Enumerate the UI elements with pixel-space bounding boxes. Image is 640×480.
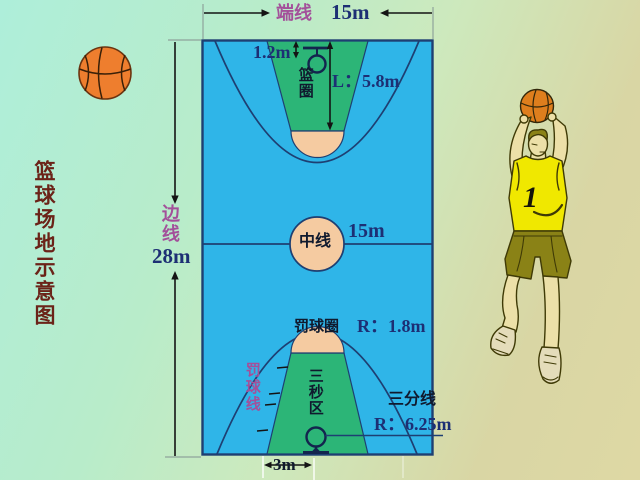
three-point-line-value: R：6.25m: [374, 415, 452, 434]
jersey-number: 1: [523, 181, 538, 214]
basketball-icon: [79, 47, 131, 99]
diagram-title: 篮球场地示意图: [33, 160, 55, 328]
three-point-line-label: 三分线: [388, 392, 436, 409]
backboard-offset-value: 1.2m: [253, 43, 291, 62]
end-line-label: 端线: [276, 4, 312, 23]
key-length-value: L：5.8m: [332, 72, 400, 91]
lane-base-value: 3m: [273, 456, 296, 474]
three-second-area-label: 三秒区: [306, 368, 322, 416]
free-throw-circle-label: 罚球圈: [294, 320, 339, 336]
end-line-value: 15m: [331, 1, 370, 23]
free-throw-circle-value: R：1.8m: [357, 317, 426, 336]
free-throw-line-label: 罚球线: [243, 362, 259, 413]
side-line-value: 28m: [152, 245, 191, 267]
side-line-label: 边线: [160, 204, 179, 244]
center-line-value: 15m: [348, 221, 385, 242]
rim-label: 篮圈: [296, 67, 312, 99]
center-line-label: 中线: [299, 234, 331, 251]
basketball-court-diagram: 1 篮球场地示意图 端线 15m 边线 28m 1.2m 篮圈 L：5.8m 中…: [0, 0, 640, 480]
player-illustration: 1: [491, 90, 571, 384]
